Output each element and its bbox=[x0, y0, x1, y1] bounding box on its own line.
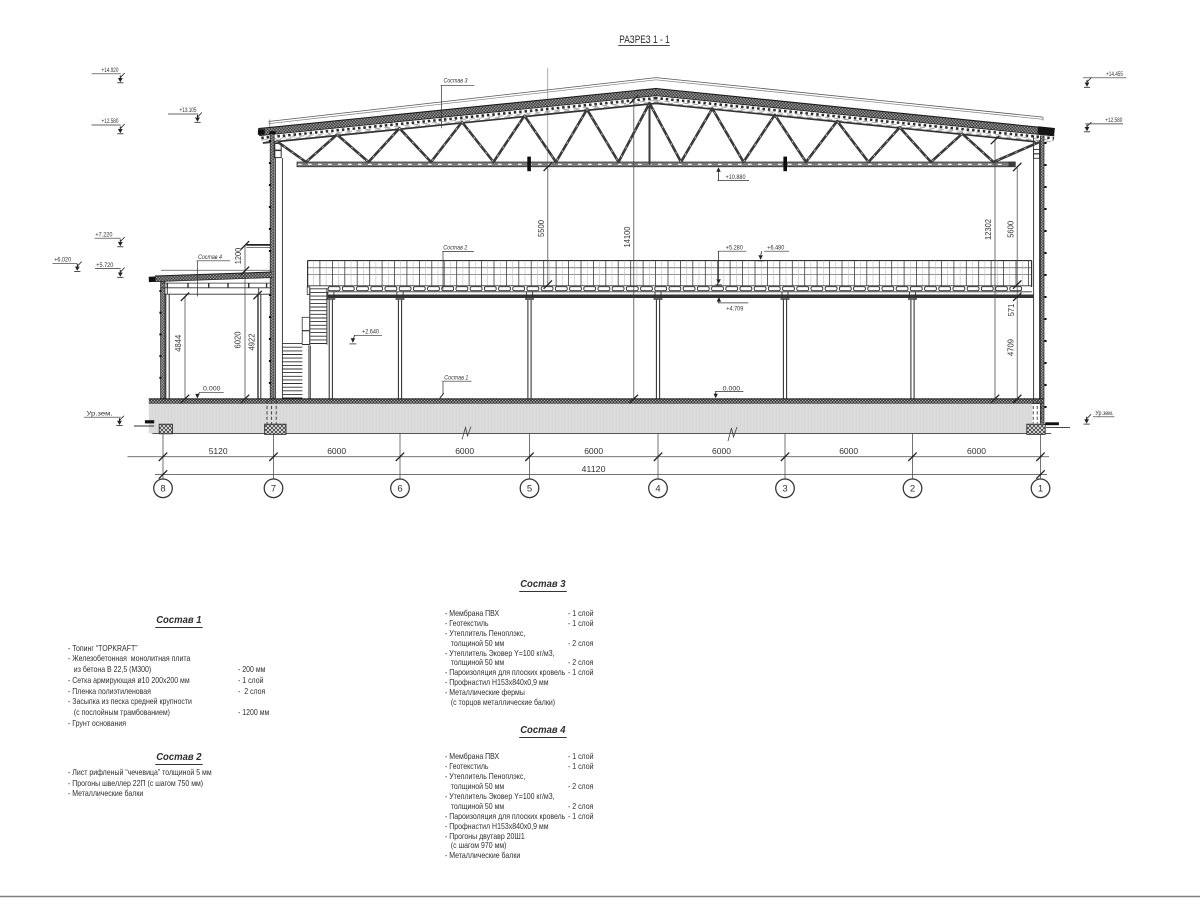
svg-text:5600: 5600 bbox=[1006, 220, 1015, 238]
svg-text:4709: 4709 bbox=[1006, 339, 1015, 356]
svg-text:6000: 6000 bbox=[967, 446, 986, 456]
svg-text:2: 2 bbox=[910, 484, 915, 495]
svg-text:3: 3 bbox=[782, 484, 787, 495]
svg-text:6000: 6000 bbox=[839, 446, 858, 456]
svg-text:+10.880: +10.880 bbox=[726, 174, 746, 181]
svg-text:+12.580: +12.580 bbox=[1105, 117, 1122, 124]
svg-text:+14.455: +14.455 bbox=[1106, 71, 1123, 78]
svg-text:6020: 6020 bbox=[233, 331, 242, 349]
svg-text:+4.709: +4.709 bbox=[726, 305, 743, 312]
svg-text:12302: 12302 bbox=[984, 219, 993, 240]
svg-text:Ур.зем.: Ур.зем. bbox=[1095, 410, 1113, 417]
svg-text:571: 571 bbox=[1007, 304, 1016, 317]
svg-text:+5.720: +5.720 bbox=[96, 262, 113, 269]
svg-text:1200: 1200 bbox=[234, 247, 243, 264]
svg-text:+6.480: +6.480 bbox=[767, 244, 784, 251]
svg-text:Состав 4: Состав 4 bbox=[198, 254, 222, 261]
svg-text:6: 6 bbox=[397, 484, 402, 495]
svg-text:1: 1 bbox=[1038, 484, 1043, 495]
svg-text:+6.020: +6.020 bbox=[54, 257, 71, 264]
svg-text:+5.280: +5.280 bbox=[726, 244, 743, 251]
svg-text:6000: 6000 bbox=[584, 446, 603, 456]
svg-text:6000: 6000 bbox=[455, 446, 474, 456]
svg-text:Ур.зем.: Ур.зем. bbox=[87, 410, 113, 417]
svg-text:4844: 4844 bbox=[174, 334, 183, 352]
svg-text:РАЗРЕЗ 1 - 1: РАЗРЕЗ 1 - 1 bbox=[619, 34, 670, 46]
svg-text:5500: 5500 bbox=[537, 219, 546, 237]
svg-text:5120: 5120 bbox=[209, 446, 228, 456]
svg-text:6000: 6000 bbox=[712, 446, 731, 456]
svg-text:Состав 3: Состав 3 bbox=[444, 78, 468, 85]
svg-text:+13.105: +13.105 bbox=[180, 107, 197, 114]
svg-text:8: 8 bbox=[160, 484, 165, 495]
svg-text:7: 7 bbox=[271, 484, 276, 495]
svg-text:Состав 1: Состав 1 bbox=[444, 374, 468, 381]
svg-text:41120: 41120 bbox=[582, 464, 606, 474]
svg-text:5: 5 bbox=[527, 484, 532, 495]
svg-text:+7.220: +7.220 bbox=[95, 231, 112, 238]
svg-text:14100: 14100 bbox=[623, 226, 632, 248]
svg-text:4: 4 bbox=[655, 484, 660, 495]
svg-text:Состав 2: Состав 2 bbox=[443, 245, 467, 252]
svg-text:4922: 4922 bbox=[248, 334, 257, 351]
svg-text:+14.920: +14.920 bbox=[102, 67, 119, 74]
svg-text:+12.580: +12.580 bbox=[102, 118, 119, 125]
svg-text:6000: 6000 bbox=[327, 446, 346, 456]
svg-text:0.000: 0.000 bbox=[203, 385, 221, 392]
svg-text:+2.640: +2.640 bbox=[362, 328, 379, 335]
